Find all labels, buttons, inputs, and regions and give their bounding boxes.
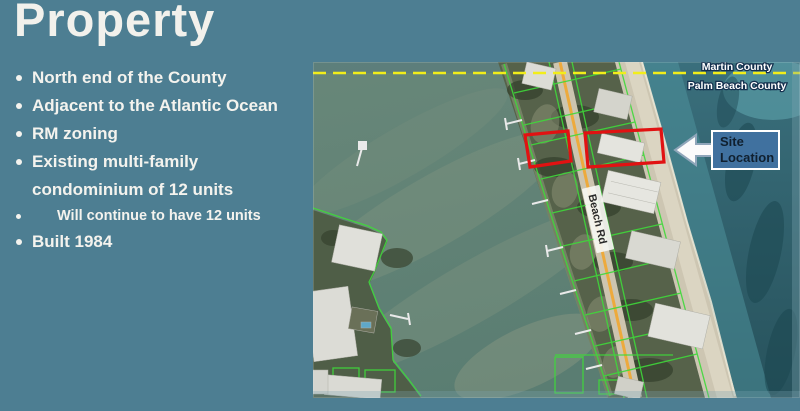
bullet-text: North end of the County (32, 64, 227, 92)
bullet-text: RM zoning (32, 120, 118, 148)
county-label-martin: Martin County (702, 62, 773, 73)
bullet-dot-icon (16, 214, 21, 219)
bullet-dot-icon (16, 159, 22, 165)
site-location-line2: Location (720, 150, 774, 165)
slide-property: Property North end of the County Adjacen… (0, 0, 800, 411)
site-map: Martin County Palm Beach County Beach Rd… (313, 62, 800, 398)
map-edge-fade-bottom (313, 391, 800, 398)
county-label-palm-beach: Palm Beach County (688, 80, 787, 92)
bullet-list: North end of the County Adjacent to the … (10, 64, 310, 256)
list-item-sub: Will continue to have 12 units (10, 204, 310, 228)
bullet-dot-icon (16, 103, 22, 109)
list-item: Built 1984 (10, 228, 310, 256)
map-edge-fade-right (792, 62, 800, 398)
bullet-text: Built 1984 (32, 228, 112, 256)
list-item: North end of the County (10, 64, 310, 92)
bullet-dot-icon (16, 75, 22, 81)
page-title: Property (14, 0, 215, 47)
bullet-dot-icon (16, 239, 22, 245)
list-item: RM zoning (10, 120, 310, 148)
map-svg: Martin County Palm Beach County Beach Rd… (313, 62, 800, 398)
list-item: Existing multi-family condominium of 12 … (10, 148, 310, 204)
bullet-text: Adjacent to the Atlantic Ocean (32, 92, 278, 120)
bullet-text: Existing multi-family condominium of 12 … (32, 148, 233, 204)
site-location-line1: Site (720, 134, 744, 149)
list-item: Adjacent to the Atlantic Ocean (10, 92, 310, 120)
bullet-dot-icon (16, 131, 22, 137)
bullet-text: Will continue to have 12 units (31, 204, 261, 228)
